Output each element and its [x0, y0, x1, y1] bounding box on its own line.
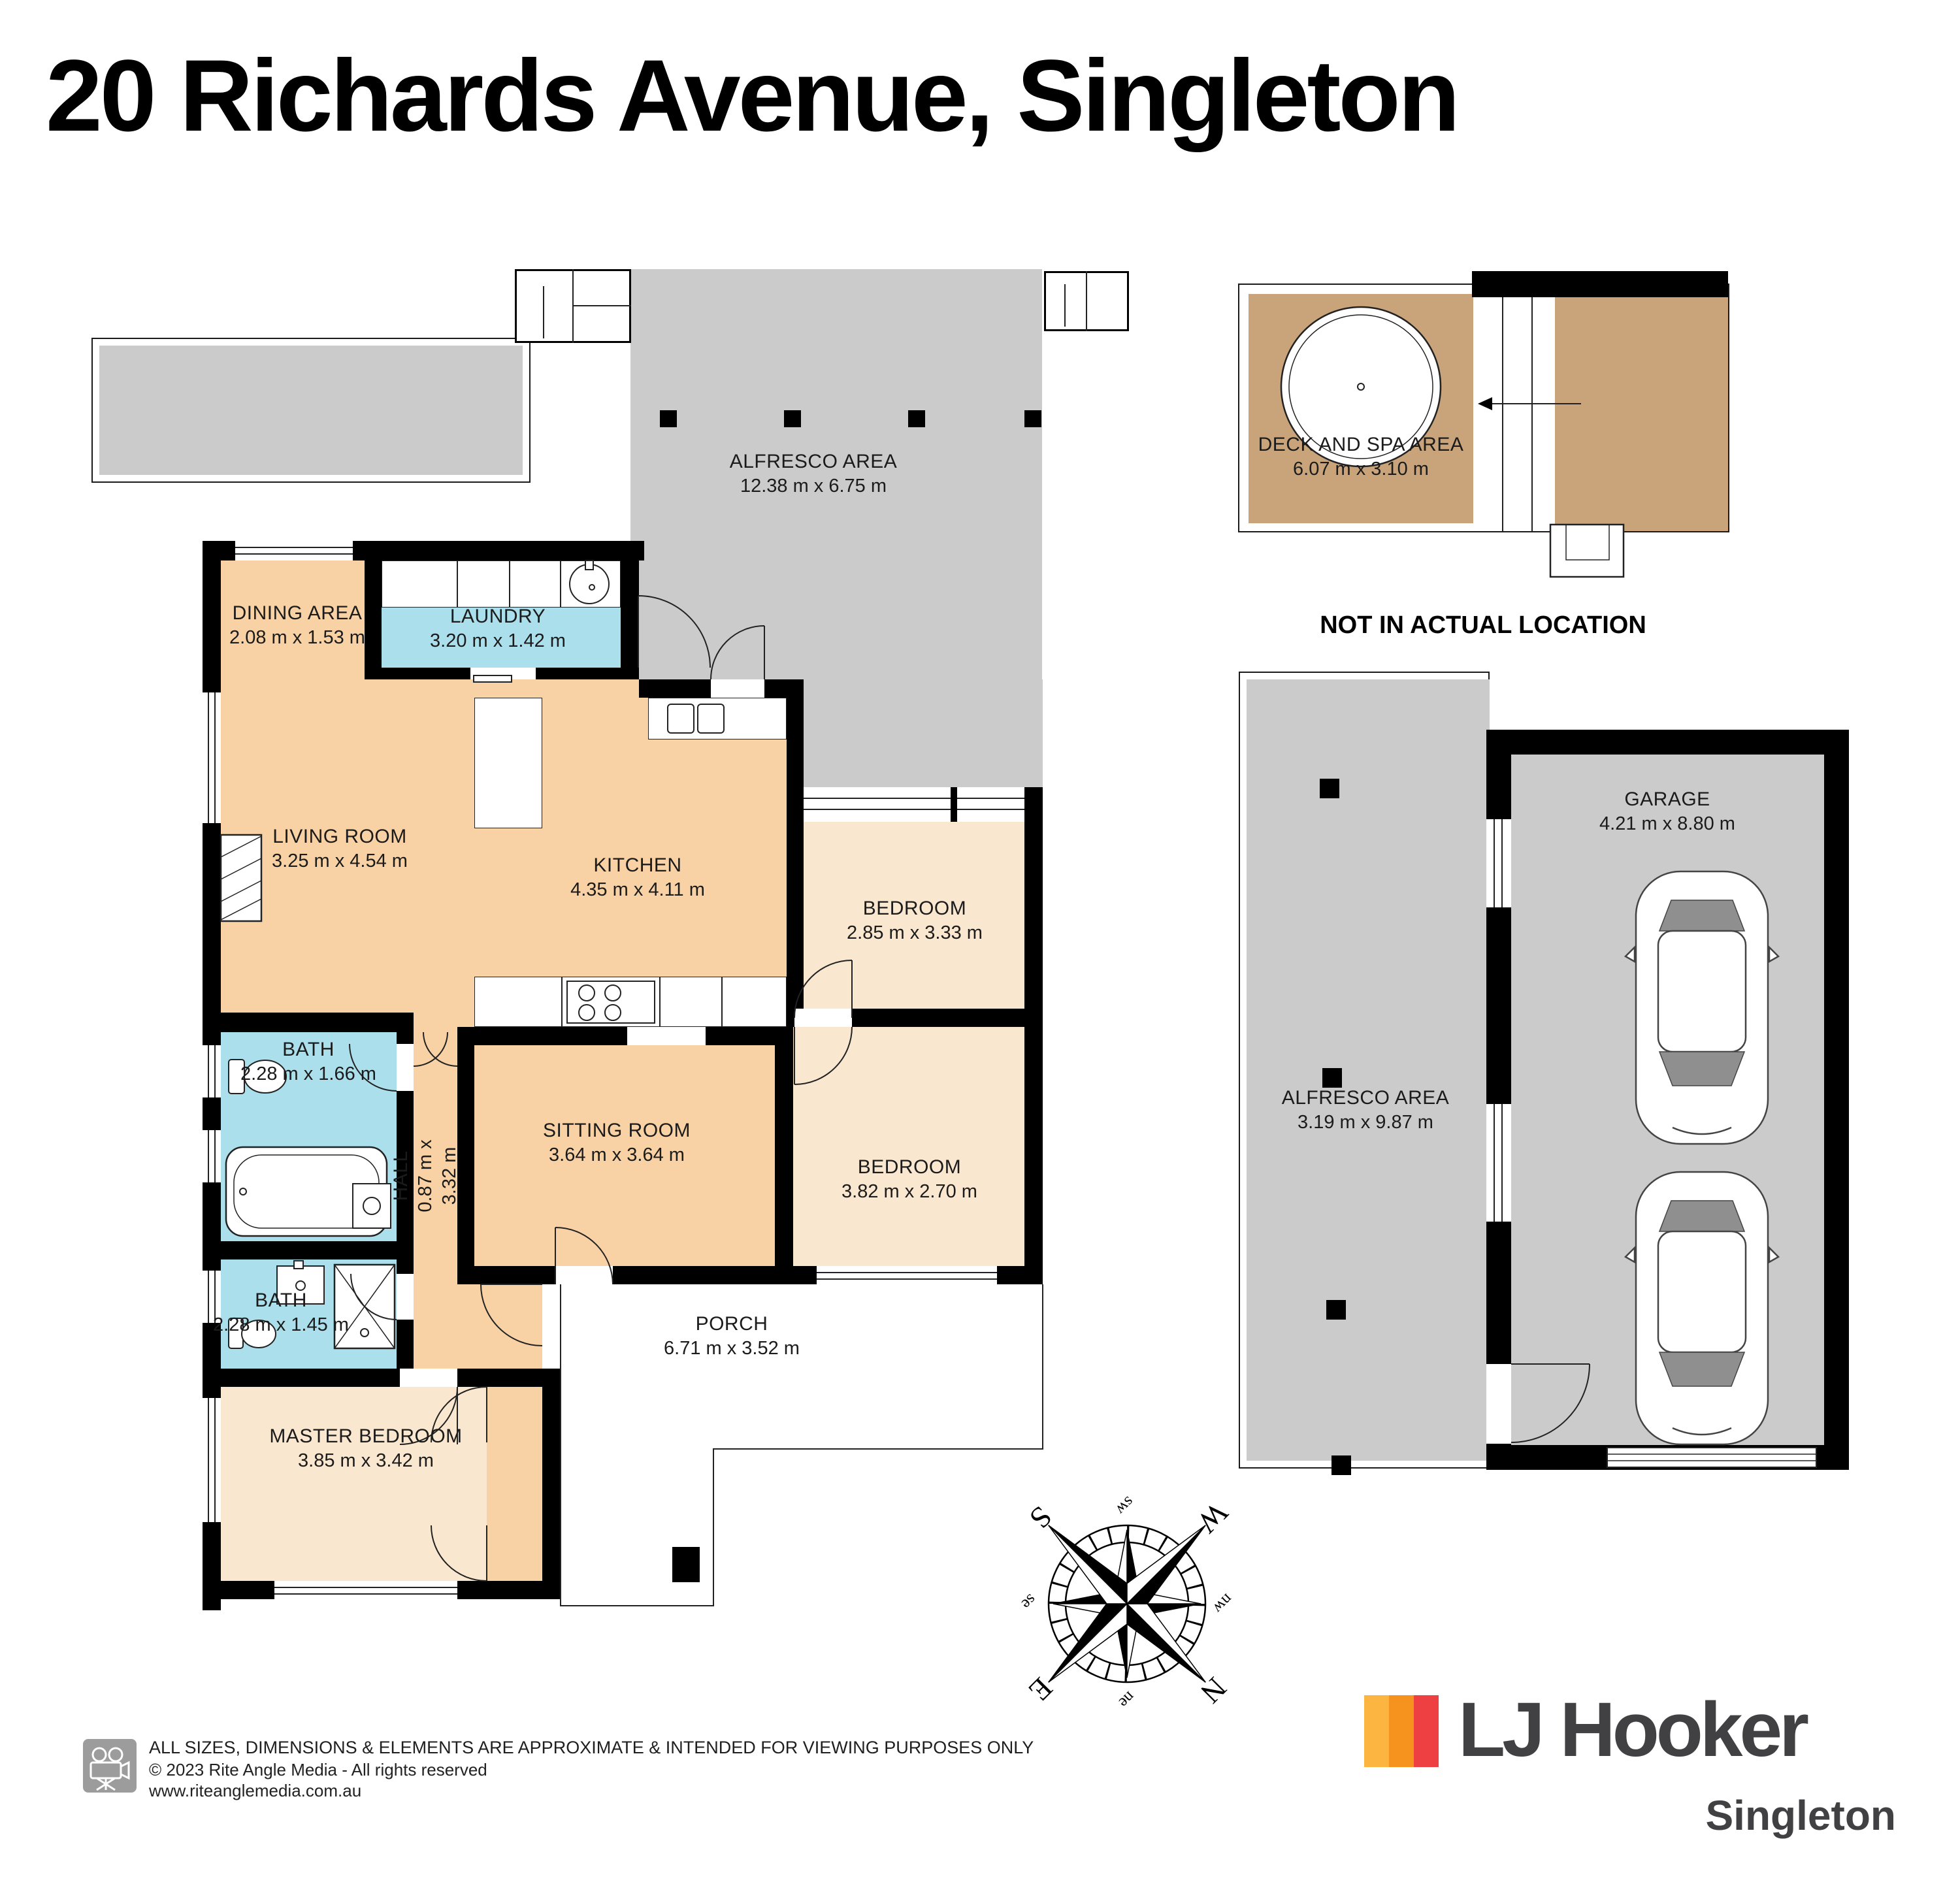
compass-se: se	[1018, 1591, 1040, 1613]
brand-name: LJ Hooker	[1458, 1685, 1806, 1774]
camera-icon	[83, 1739, 137, 1793]
floorplan-page: 20 Richards Avenue, Singleton	[0, 0, 1960, 1901]
compass-sw: sw	[1112, 1493, 1137, 1518]
logo-stripe-orange	[1389, 1695, 1414, 1767]
car-icon	[1625, 871, 1778, 1444]
logo-stripe-yellow	[1364, 1695, 1389, 1767]
deck-note: NOT IN ACTUAL LOCATION	[1320, 611, 1646, 640]
compass-nw: nw	[1209, 1590, 1236, 1617]
footer-copyright: © 2023 Rite Angle Media - All rights res…	[149, 1760, 487, 1780]
compass-rose: N E S W ne se sw nw	[937, 1410, 1322, 1795]
footer-website: www.riteanglemedia.com.au	[149, 1781, 361, 1801]
brand-location: Singleton	[1601, 1791, 1896, 1840]
logo-stripe-red	[1414, 1695, 1439, 1767]
footer-disclaimer: ALL SIZES, DIMENSIONS & ELEMENTS ARE APP…	[149, 1738, 1034, 1758]
fixtures-overlay: N E S W ne se sw nw	[0, 0, 1960, 1901]
compass-ne: ne	[1115, 1688, 1139, 1712]
